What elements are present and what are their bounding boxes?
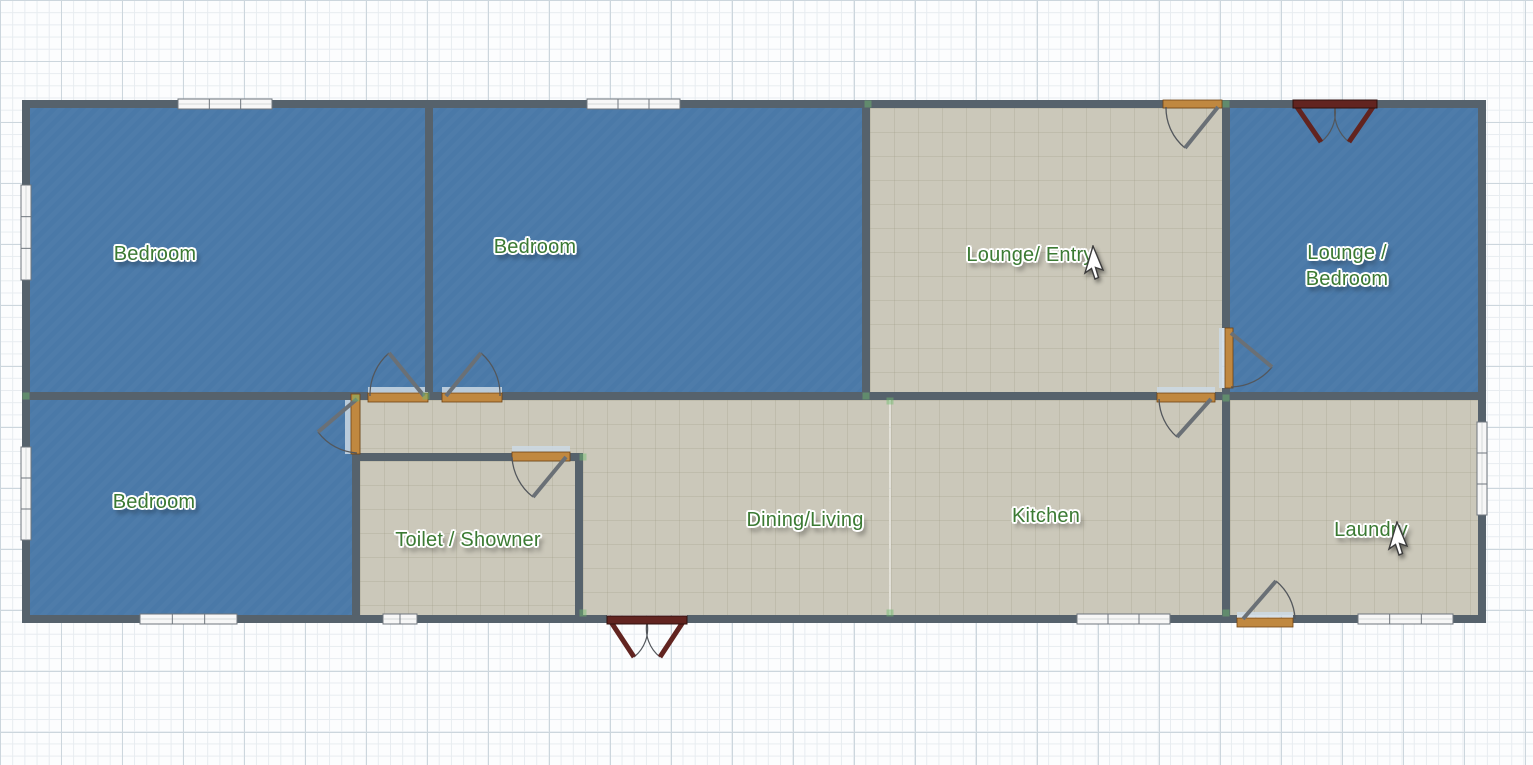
wall[interactable]	[1222, 108, 1230, 328]
corner-handle[interactable]	[887, 398, 894, 405]
door-threshold	[512, 446, 570, 452]
corner-handle[interactable]	[1223, 101, 1230, 108]
door-lounge-entry-swing-arc	[1166, 107, 1185, 148]
wall[interactable]	[1215, 392, 1486, 400]
wall[interactable]	[575, 453, 583, 615]
french-door-dining-living-leaf[interactable]	[611, 622, 634, 657]
french-door-lounge-bedroom-leaf[interactable]	[1297, 107, 1321, 142]
door-lounge-bedroom-swing-arc	[1231, 367, 1272, 387]
french-door-dining-living-swing-arc	[634, 622, 648, 657]
french-door-lounge-bedroom-lintel[interactable]	[1293, 100, 1377, 108]
french-door-dining-living-lintel[interactable]	[607, 616, 687, 624]
french-door-dining-living-swing-arc	[646, 622, 660, 657]
wall[interactable]	[22, 392, 368, 400]
corner-handle[interactable]	[23, 393, 30, 400]
door-kitchen-sill[interactable]	[1157, 393, 1215, 402]
door-toilet-swing-arc	[512, 457, 533, 497]
door-toilet-leaf[interactable]	[533, 457, 566, 497]
wall[interactable]	[1222, 400, 1230, 615]
floorplan-canvas[interactable]: BedroomBedroomLounge/ EntryLounge / Bedr…	[0, 0, 1533, 765]
door-kitchen-swing-arc	[1159, 399, 1177, 437]
corner-handle[interactable]	[865, 101, 872, 108]
door-threshold	[1219, 328, 1225, 388]
door-bedroom-2-sill[interactable]	[442, 393, 502, 402]
corner-handle[interactable]	[887, 610, 894, 617]
wall[interactable]	[502, 392, 1157, 400]
wall[interactable]	[1222, 100, 1293, 108]
corner-handle[interactable]	[423, 393, 430, 400]
wall[interactable]	[425, 108, 433, 392]
door-bedroom-1-sill[interactable]	[368, 393, 428, 402]
french-door-lounge-bedroom-swing-arc	[1335, 107, 1349, 142]
corner-handle[interactable]	[1223, 395, 1230, 402]
wall[interactable]	[352, 453, 360, 615]
corner-handle[interactable]	[863, 393, 870, 400]
wall[interactable]	[428, 392, 442, 400]
walls-doors-windows-layer	[0, 0, 1533, 765]
wall[interactable]	[1222, 388, 1230, 392]
wall[interactable]	[1377, 100, 1486, 108]
door-kitchen-leaf[interactable]	[1177, 399, 1211, 437]
door-threshold	[1157, 387, 1215, 393]
corner-handle[interactable]	[580, 454, 587, 461]
room-divider[interactable]	[889, 400, 891, 615]
french-door-lounge-bedroom-swing-arc	[1321, 107, 1335, 142]
wall[interactable]	[862, 108, 870, 392]
wall[interactable]	[352, 453, 512, 461]
corner-handle[interactable]	[1223, 610, 1230, 617]
door-lounge-bedroom-leaf[interactable]	[1231, 333, 1272, 367]
wall[interactable]	[22, 100, 30, 623]
corner-handle[interactable]	[580, 610, 587, 617]
french-door-dining-living-leaf[interactable]	[660, 622, 683, 657]
door-lounge-bedroom-sill[interactable]	[1225, 328, 1233, 388]
door-lounge-entry-leaf[interactable]	[1185, 107, 1218, 148]
corner-handle[interactable]	[353, 395, 360, 402]
door-laundry-sill[interactable]	[1237, 618, 1293, 627]
wall[interactable]	[1478, 100, 1486, 623]
french-door-lounge-bedroom-leaf[interactable]	[1349, 107, 1373, 142]
wall[interactable]	[22, 615, 607, 623]
door-lounge-entry-sill[interactable]	[1163, 100, 1222, 108]
